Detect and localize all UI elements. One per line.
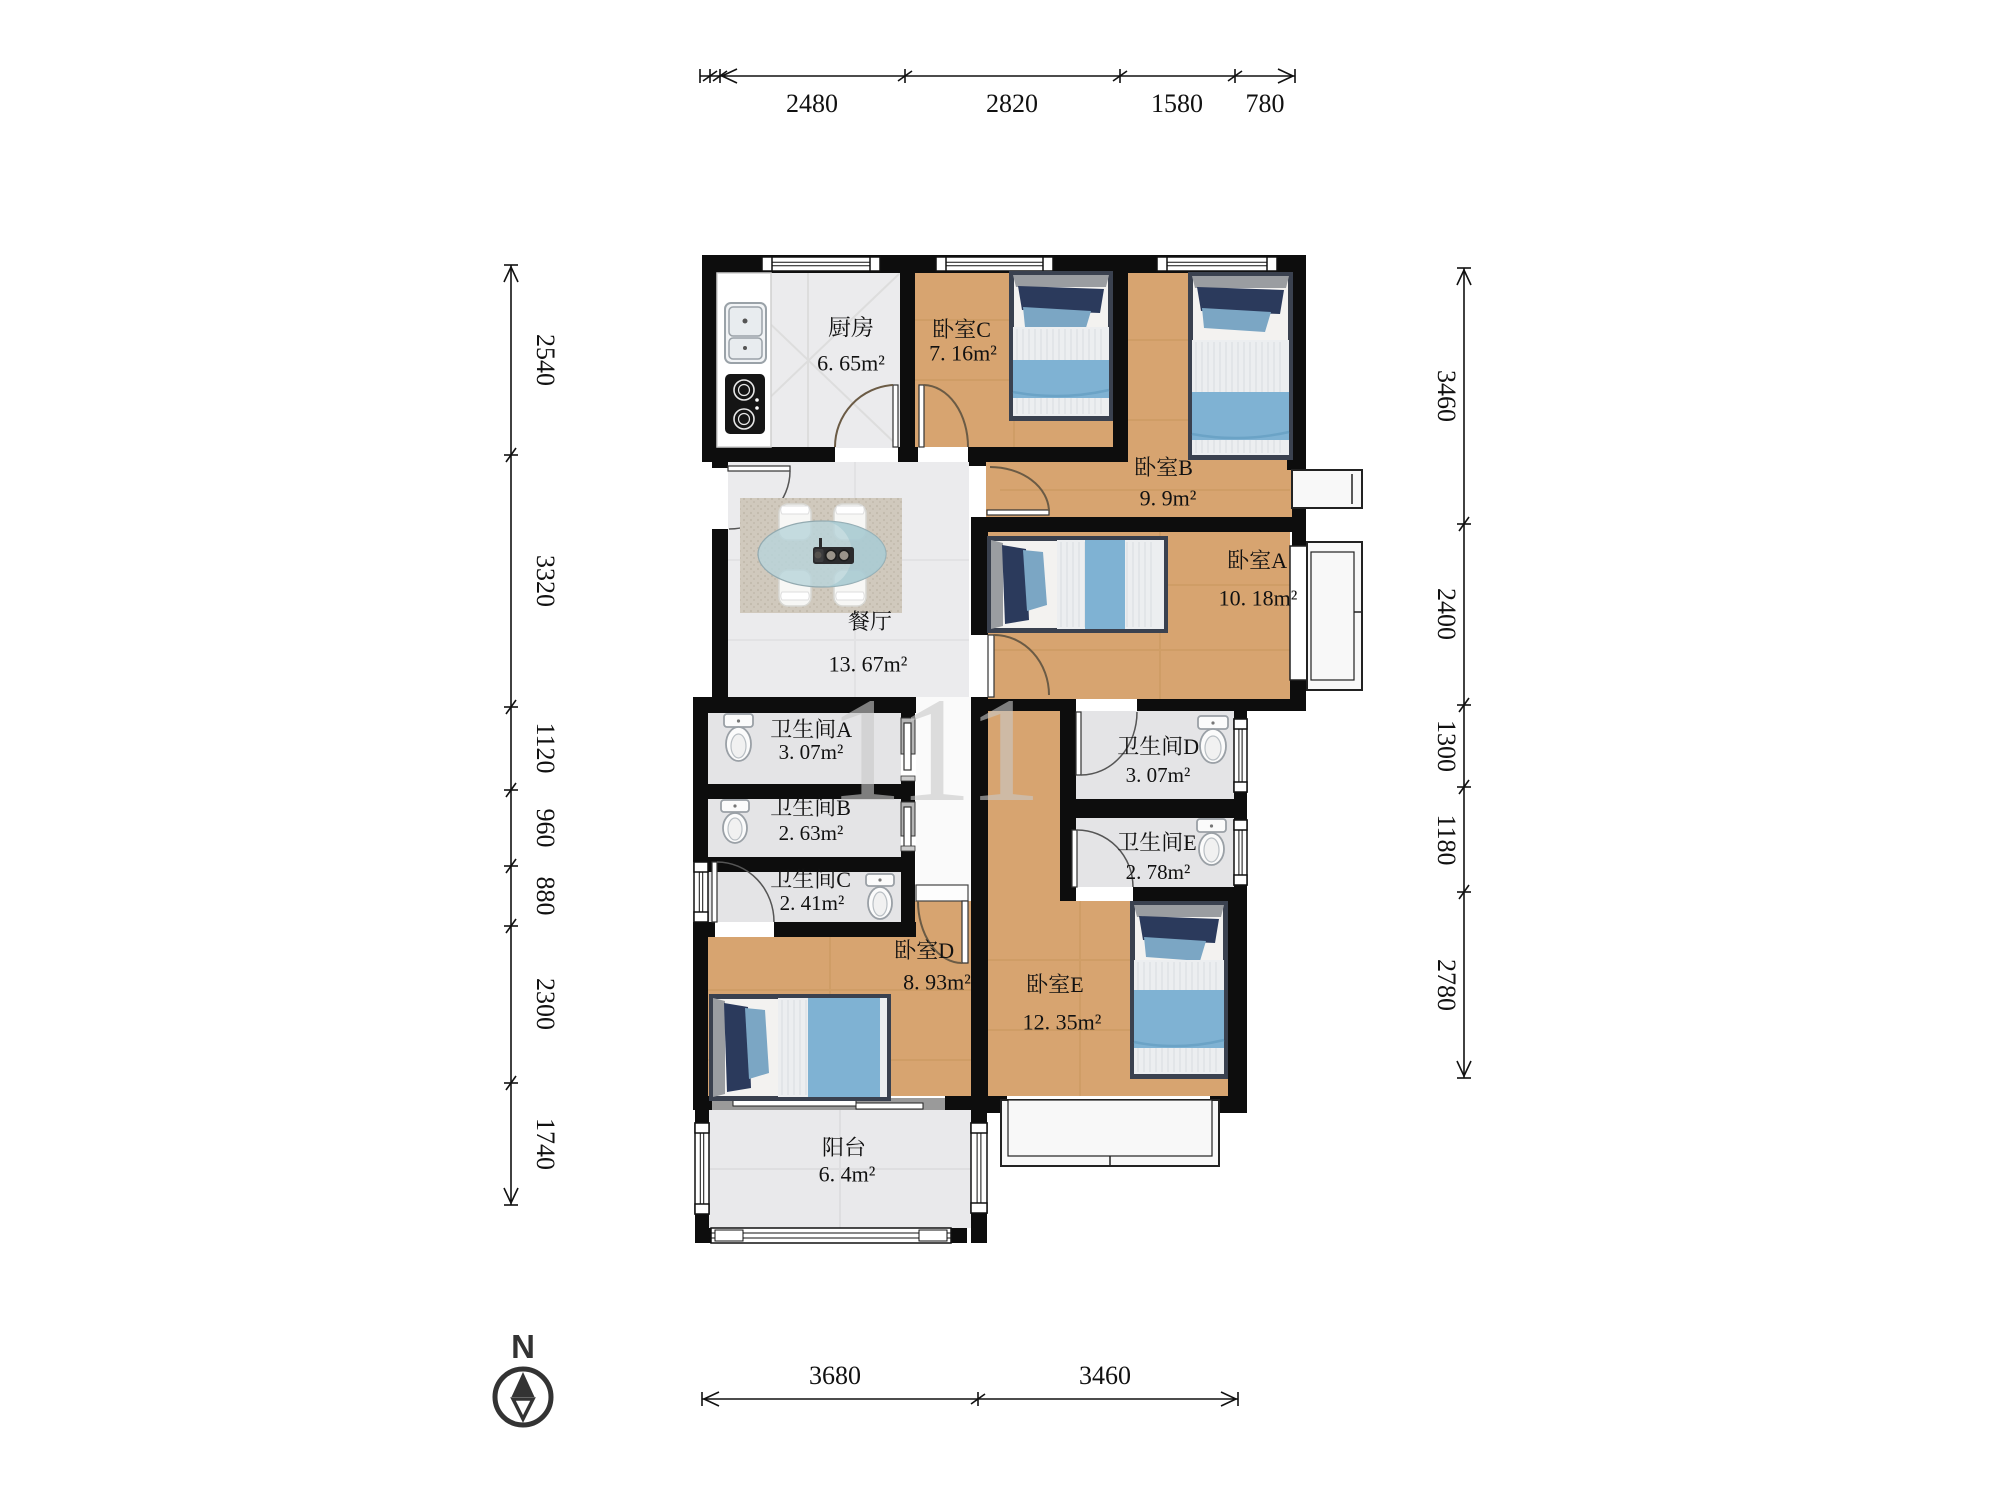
svg-text:3680: 3680 bbox=[809, 1361, 861, 1390]
svg-text:960: 960 bbox=[531, 809, 560, 848]
svg-text:780: 780 bbox=[1246, 89, 1285, 118]
svg-text:D: D bbox=[938, 938, 954, 963]
svg-text:E: E bbox=[1183, 830, 1196, 855]
svg-text:2820: 2820 bbox=[986, 89, 1038, 118]
svg-text:12. 35m²: 12. 35m² bbox=[1023, 1009, 1102, 1034]
svg-text:A: A bbox=[1271, 548, 1287, 573]
svg-text:E: E bbox=[1070, 972, 1083, 997]
svg-text:10. 18m²: 10. 18m² bbox=[1219, 585, 1298, 610]
svg-text:9. 9m²: 9. 9m² bbox=[1140, 485, 1197, 510]
svg-text:3460: 3460 bbox=[1079, 1361, 1131, 1390]
svg-text:3320: 3320 bbox=[531, 555, 560, 607]
svg-text:C: C bbox=[836, 867, 851, 892]
svg-text:2. 63m²: 2. 63m² bbox=[779, 821, 844, 845]
svg-text:880: 880 bbox=[531, 877, 560, 916]
svg-text:2480: 2480 bbox=[786, 89, 838, 118]
svg-text:111: 111 bbox=[828, 667, 1042, 833]
svg-text:2300: 2300 bbox=[531, 978, 560, 1030]
svg-text:A: A bbox=[836, 717, 852, 742]
svg-text:D: D bbox=[1183, 734, 1199, 759]
svg-text:2. 78m²: 2. 78m² bbox=[1126, 860, 1191, 884]
svg-text:3. 07m²: 3. 07m² bbox=[1126, 763, 1191, 787]
svg-text:7. 16m²: 7. 16m² bbox=[929, 340, 997, 365]
svg-text:13. 67m²: 13. 67m² bbox=[829, 651, 908, 676]
svg-text:B: B bbox=[1178, 455, 1193, 480]
svg-text:2540: 2540 bbox=[531, 334, 560, 386]
svg-text:C: C bbox=[976, 317, 991, 342]
svg-text:1180: 1180 bbox=[1432, 814, 1461, 865]
svg-text:3. 07m²: 3. 07m² bbox=[779, 740, 844, 764]
svg-text:1740: 1740 bbox=[531, 1118, 560, 1170]
svg-text:3460: 3460 bbox=[1432, 370, 1461, 422]
svg-text:2780: 2780 bbox=[1432, 959, 1461, 1011]
svg-text:6. 65m²: 6. 65m² bbox=[817, 350, 885, 375]
svg-text:B: B bbox=[836, 795, 851, 820]
svg-text:1300: 1300 bbox=[1432, 720, 1461, 772]
svg-text:8. 93m²: 8. 93m² bbox=[903, 969, 971, 994]
svg-text:6. 4m²: 6. 4m² bbox=[819, 1161, 876, 1186]
svg-text:1120: 1120 bbox=[531, 722, 560, 773]
svg-text:N: N bbox=[511, 1328, 535, 1365]
svg-text:1580: 1580 bbox=[1151, 89, 1203, 118]
svg-text:2400: 2400 bbox=[1432, 588, 1461, 640]
svg-text:2. 41m²: 2. 41m² bbox=[780, 891, 845, 915]
